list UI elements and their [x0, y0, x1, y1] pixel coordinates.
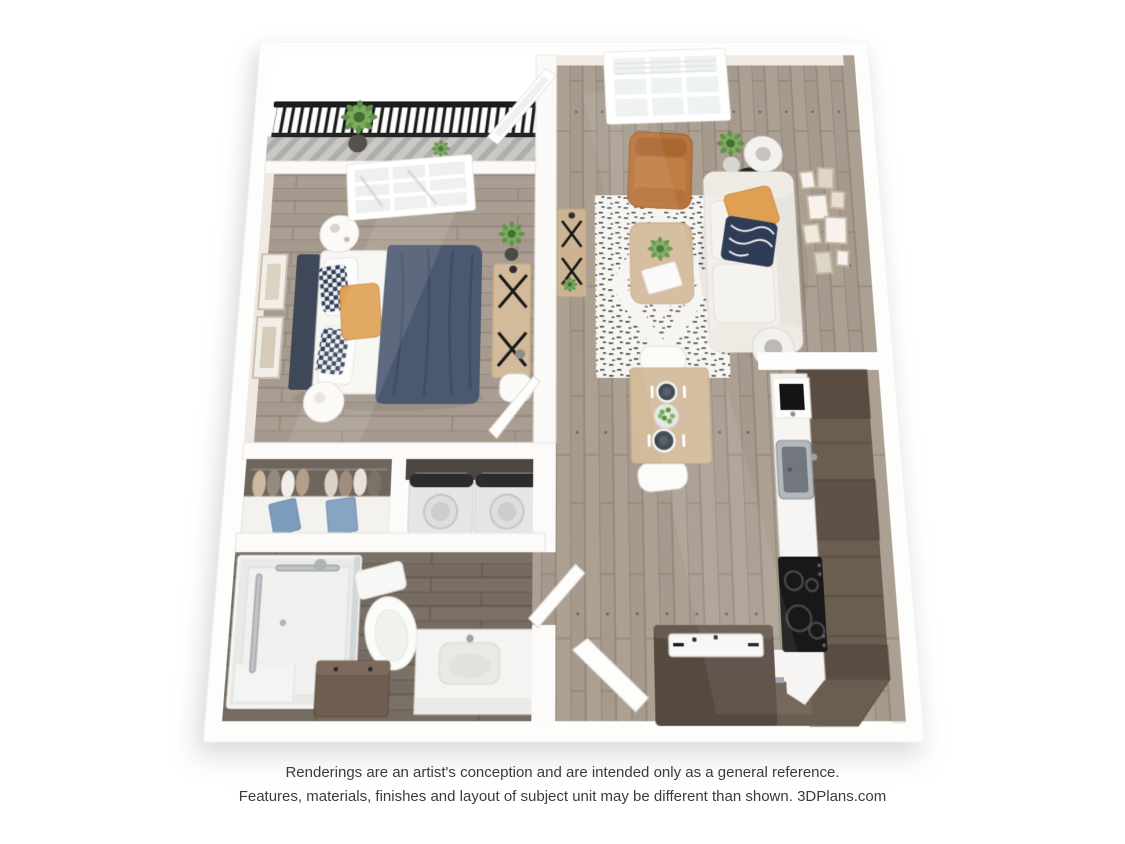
- bedroom-desk: [492, 264, 531, 378]
- sofa-cushion: [712, 264, 776, 323]
- bathroom-cabinet: [314, 661, 390, 716]
- page: Renderings are an artist's conception an…: [0, 0, 1125, 844]
- blue-storage-box: [269, 498, 301, 536]
- console-plant: [562, 277, 577, 292]
- hall-wall: [533, 443, 556, 548]
- closet-shelf: [241, 497, 391, 537]
- wardrobe-closet: [241, 459, 392, 537]
- balcony-railing-top-rail: [274, 101, 546, 107]
- sofa-navy-pillow: [720, 215, 778, 268]
- bathroom: [222, 552, 556, 721]
- disclaimer-line1: Renderings are an artist's conception an…: [0, 761, 1125, 785]
- bathroom-top-wall: [235, 533, 545, 552]
- disclaimer: Renderings are an artist's conception an…: [0, 761, 1125, 809]
- washer: [407, 474, 473, 538]
- kitchen-wall-stub: [758, 352, 879, 370]
- laundry-closet: [403, 459, 539, 537]
- hanging-clothes: [251, 468, 381, 497]
- floor-plan-3d: [203, 42, 925, 743]
- bathroom-right-wall: [531, 625, 555, 721]
- coffee-maker: [773, 378, 812, 418]
- vanity: [414, 629, 534, 714]
- dryer: [474, 474, 539, 538]
- upper-cabinet: [807, 480, 879, 539]
- floor-plan-rendering: [203, 42, 925, 743]
- shower-bench: [232, 663, 295, 702]
- blue-storage-box: [326, 497, 358, 535]
- grab-bar: [276, 565, 339, 570]
- balcony-open-area: [270, 55, 547, 103]
- balcony-floor-shadow-stripes: [265, 136, 547, 163]
- balcony: [265, 55, 547, 163]
- disclaimer-line2: Features, materials, finishes and layout…: [0, 785, 1125, 809]
